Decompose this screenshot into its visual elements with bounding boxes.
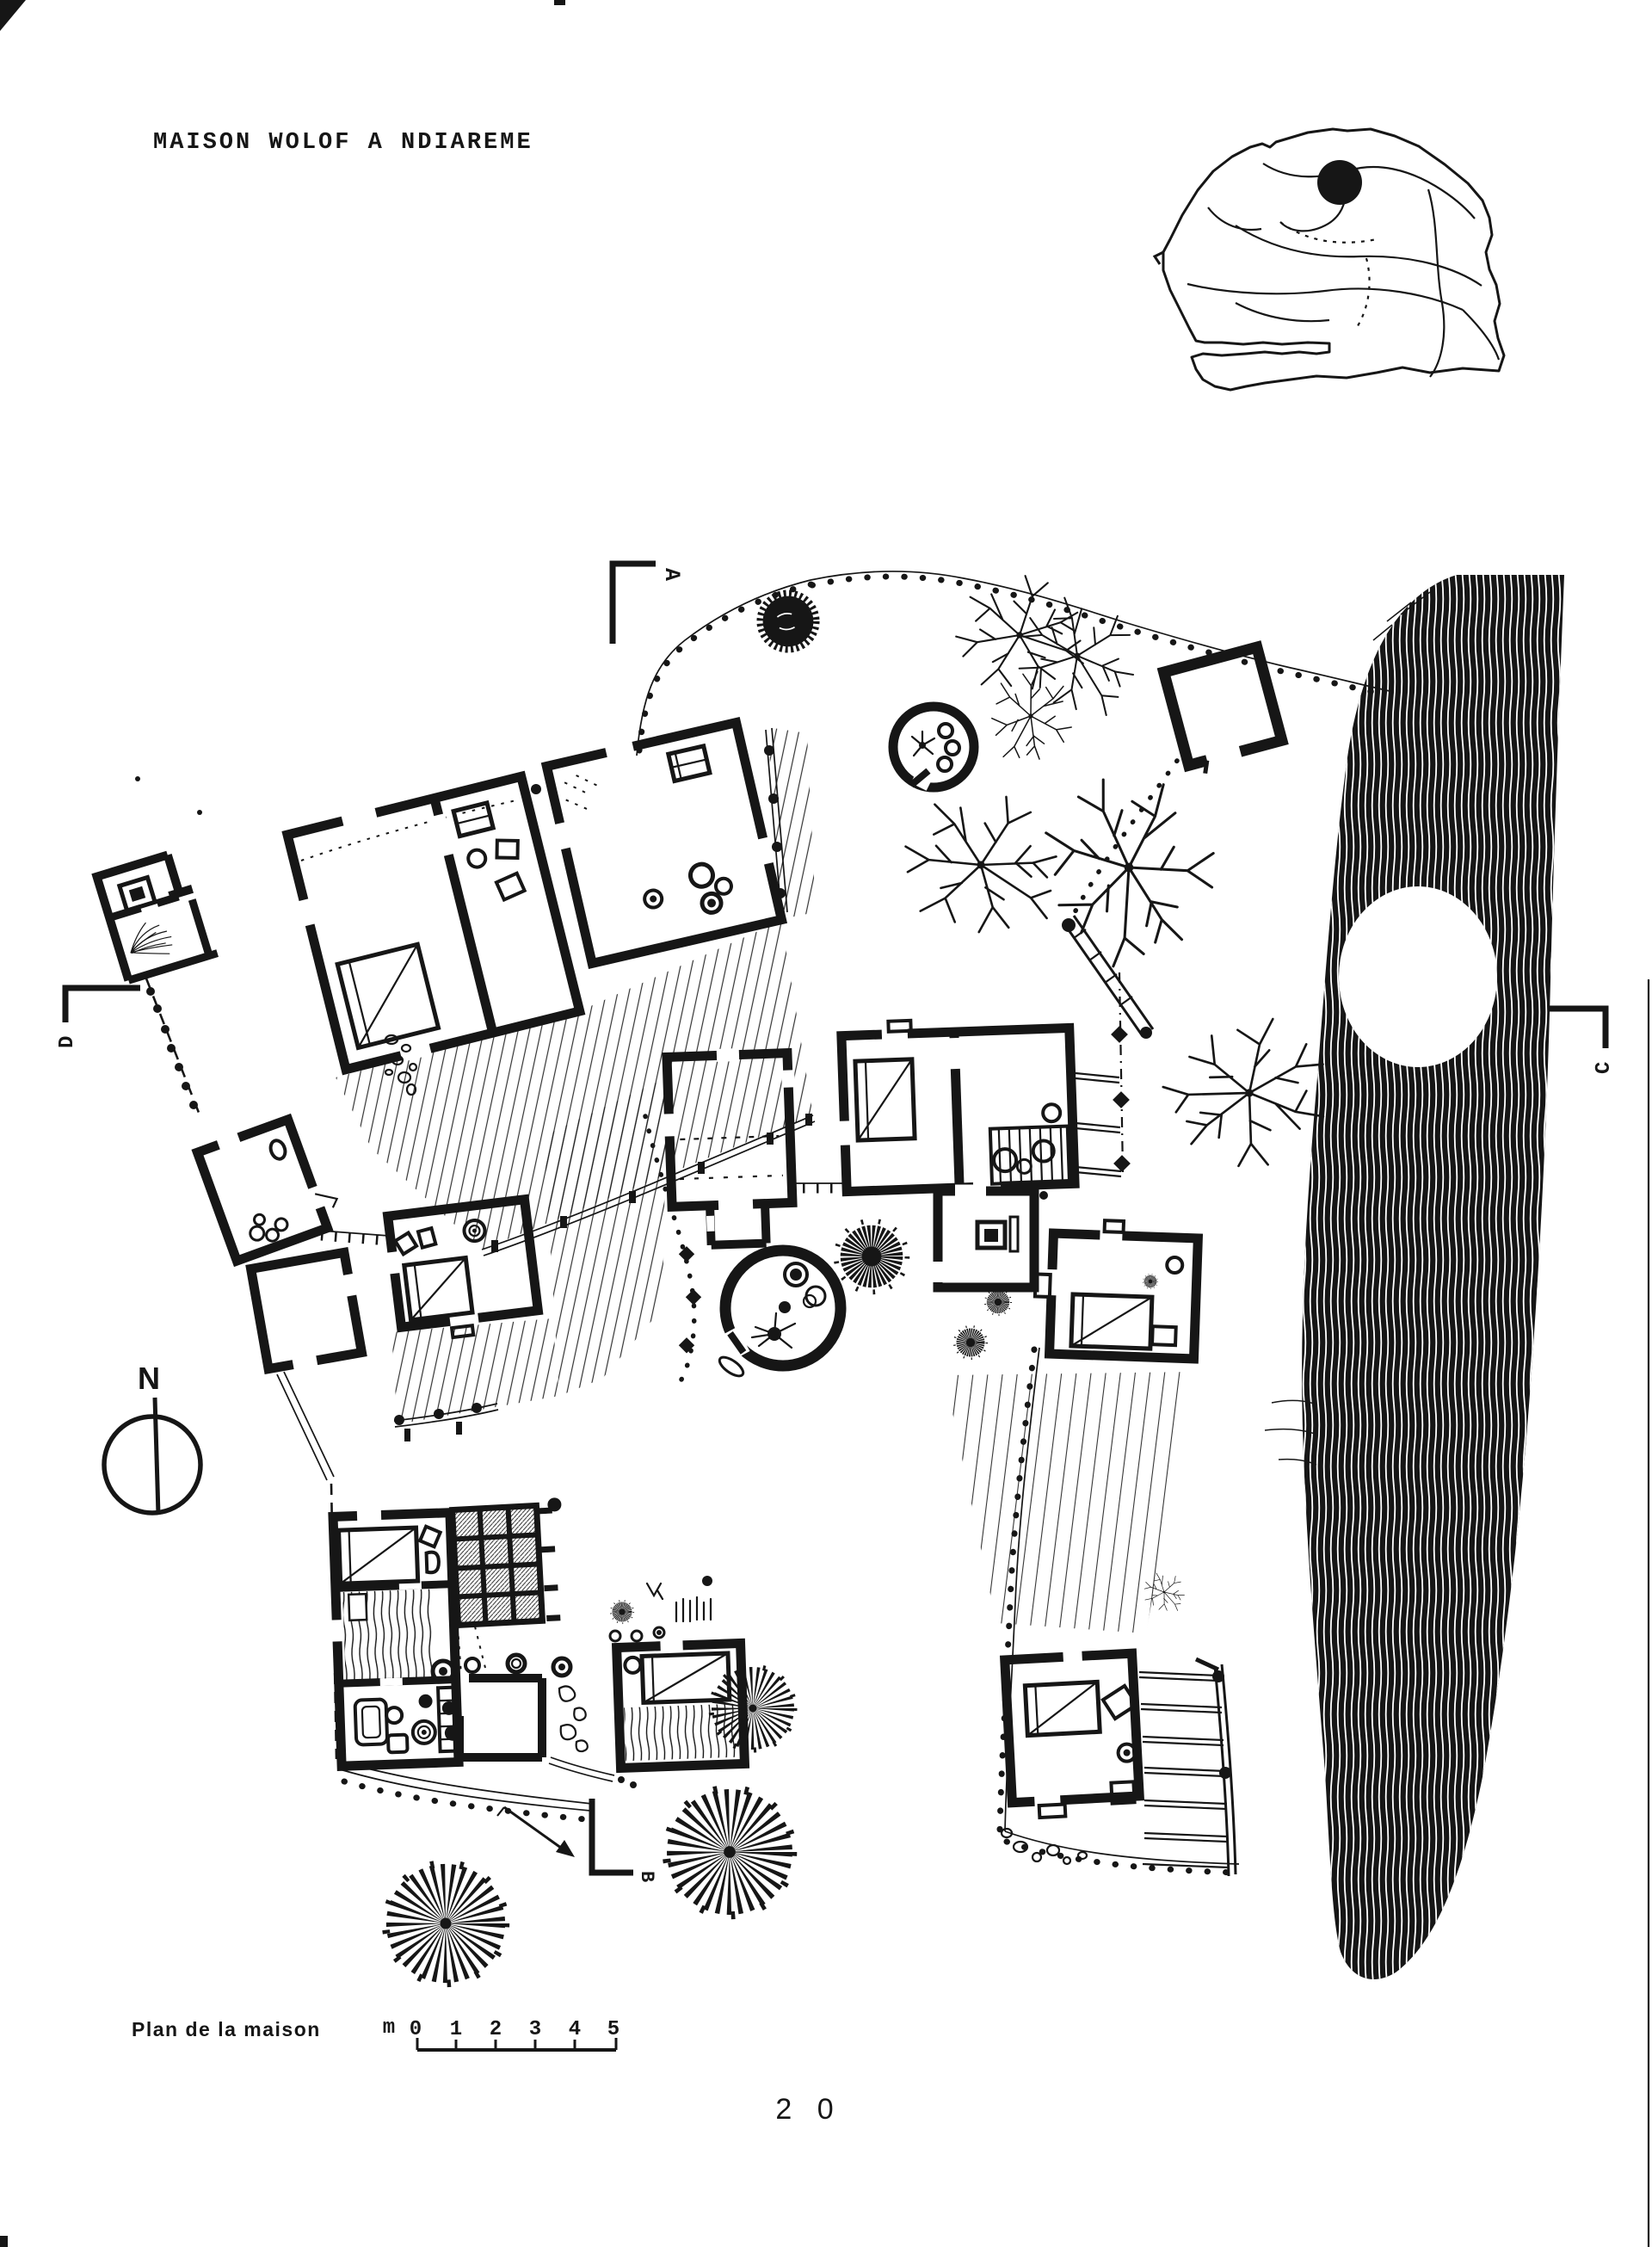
scale-tick-1: 1 [450, 2018, 462, 2041]
compass-circle [104, 1417, 200, 1513]
senegal-locator-map [1155, 129, 1504, 390]
scale-caption: Plan de la maison [132, 2018, 321, 2040]
two-room-east-house [841, 1015, 1075, 1191]
trellis-garden [452, 1497, 567, 1626]
big-tree-shadow [1265, 575, 1564, 1979]
shaggy-tree-4 [611, 1601, 633, 1623]
nw-house-1 [287, 776, 580, 1069]
veranda-south-of-east-house [945, 1372, 1192, 1633]
north-label: N [138, 1361, 160, 1396]
branch-tree-2 [998, 574, 1160, 734]
bed [337, 944, 438, 1047]
pot-rack [990, 1127, 1069, 1184]
page-number: 2 0 [775, 2093, 841, 2126]
scanned-plan-page: MAISON WOLOF A NDIAREME A B C D N [0, 0, 1652, 2247]
bed [339, 1528, 418, 1583]
shaggy-tree-5 [1143, 1275, 1158, 1289]
kitchen-furniture [354, 1687, 461, 1754]
teeth-fence-1 [789, 1183, 848, 1188]
animal-pen [1164, 647, 1285, 777]
bed [1025, 1682, 1100, 1735]
fence-north [811, 571, 1390, 695]
annex-with-box [938, 1191, 1048, 1287]
door-step [888, 1021, 910, 1032]
scale-tick-3: 3 [529, 2018, 541, 2041]
open-annex-room [459, 1678, 542, 1757]
kitchen-house [333, 1513, 461, 1767]
water-pots [639, 859, 736, 927]
small-jars [610, 1627, 664, 1641]
plan-drawing: MAISON WOLOF A NDIAREME A B C D N [0, 0, 1652, 2247]
page-title: MAISON WOLOF A NDIAREME [153, 130, 533, 156]
section-marker-b: B [592, 1799, 657, 1882]
fence-pen-link [1072, 761, 1177, 917]
trellis-ladder [1062, 916, 1153, 1039]
rails-east-of-house [1076, 1073, 1121, 1176]
scale-tick-4: 4 [569, 2018, 581, 2041]
section-marker-a: A [613, 564, 684, 644]
furniture [453, 798, 531, 906]
north-indicator: N [104, 1361, 200, 1515]
buildings [97, 647, 1285, 1876]
fence-h-stub [277, 1372, 334, 1480]
scale-tick-5: 5 [607, 2018, 619, 2041]
bed [855, 1059, 915, 1140]
bed [1071, 1294, 1152, 1349]
scale-tick-2: 2 [490, 2018, 502, 2041]
bush-in-annex [122, 916, 177, 968]
branch-tree-4 [889, 775, 1074, 948]
se-bedroom-hut [1005, 1653, 1143, 1819]
chair [427, 1552, 440, 1572]
empty-square-hut [251, 1252, 362, 1368]
granary-ring [893, 707, 974, 787]
shaggy-tree-3 [954, 1326, 987, 1359]
bed [404, 1258, 472, 1320]
grass-tufts [647, 1583, 711, 1621]
section-marker-c: C [1550, 1009, 1616, 1074]
urchin-tree-2 [666, 1788, 792, 1915]
scoop [717, 1354, 746, 1380]
east-bedroom-hut [1033, 1218, 1199, 1358]
section-label-b: B [636, 1871, 657, 1882]
section-label-c: C [1593, 1062, 1616, 1074]
shaggy-tree-2 [985, 1289, 1011, 1315]
nw-house-2 [546, 723, 781, 964]
canopy-white-notch [1339, 886, 1497, 1067]
scale-ruler [417, 2038, 616, 2050]
fence-west-upper [146, 978, 200, 1117]
branch-tree-5 [1031, 757, 1235, 976]
dark-blob-tree [761, 594, 816, 649]
south-bedroom-hut [617, 1643, 745, 1768]
branch-tree-1 [956, 576, 1083, 688]
stepping-stones [559, 1686, 588, 1751]
drying-rack [1139, 1659, 1236, 1876]
scale-bar: Plan de la maison m 0 1 2 3 4 5 [132, 2016, 619, 2050]
location-marker-dot [1317, 160, 1362, 205]
section-marker-d: D [56, 988, 140, 1048]
scale-unit: m [383, 2016, 395, 2040]
branch-tree-3 [986, 665, 1081, 768]
grid-dash [458, 1627, 487, 1675]
section-label-d: D [56, 1036, 79, 1048]
urchin-tree-3 [385, 1863, 506, 1984]
section-label-a: A [659, 568, 684, 581]
teeth-fence-2 [321, 1231, 389, 1241]
shaggy-tree-1 [836, 1221, 908, 1293]
well-enclosure [717, 1250, 841, 1380]
scale-tick-0: 0 [410, 2018, 422, 2041]
west-annex-structure [97, 849, 218, 980]
square-store-hut [197, 1113, 345, 1261]
